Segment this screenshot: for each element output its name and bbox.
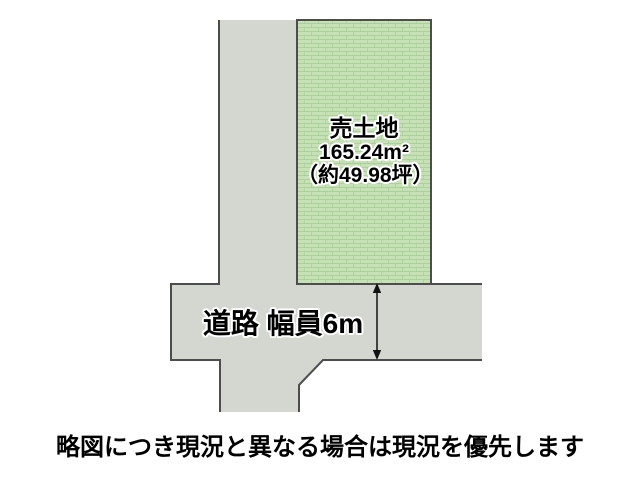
plot-area-m2: 165.24m² <box>297 141 431 165</box>
plot-area-tsubo: （約49.98坪） <box>297 164 431 188</box>
site-plan-diagram: 売土地 165.24m² （約49.98坪） 道路 幅員6m 略図につき現況と異… <box>0 0 640 480</box>
plot-label: 売土地 165.24m² （約49.98坪） <box>297 117 431 188</box>
road-label: 道路 幅員6m <box>173 309 393 339</box>
caption: 略図につき現況と異なる場合は現況を優先します <box>0 434 640 462</box>
site-plan-svg <box>0 0 640 480</box>
plot-title: 売土地 <box>297 117 431 141</box>
